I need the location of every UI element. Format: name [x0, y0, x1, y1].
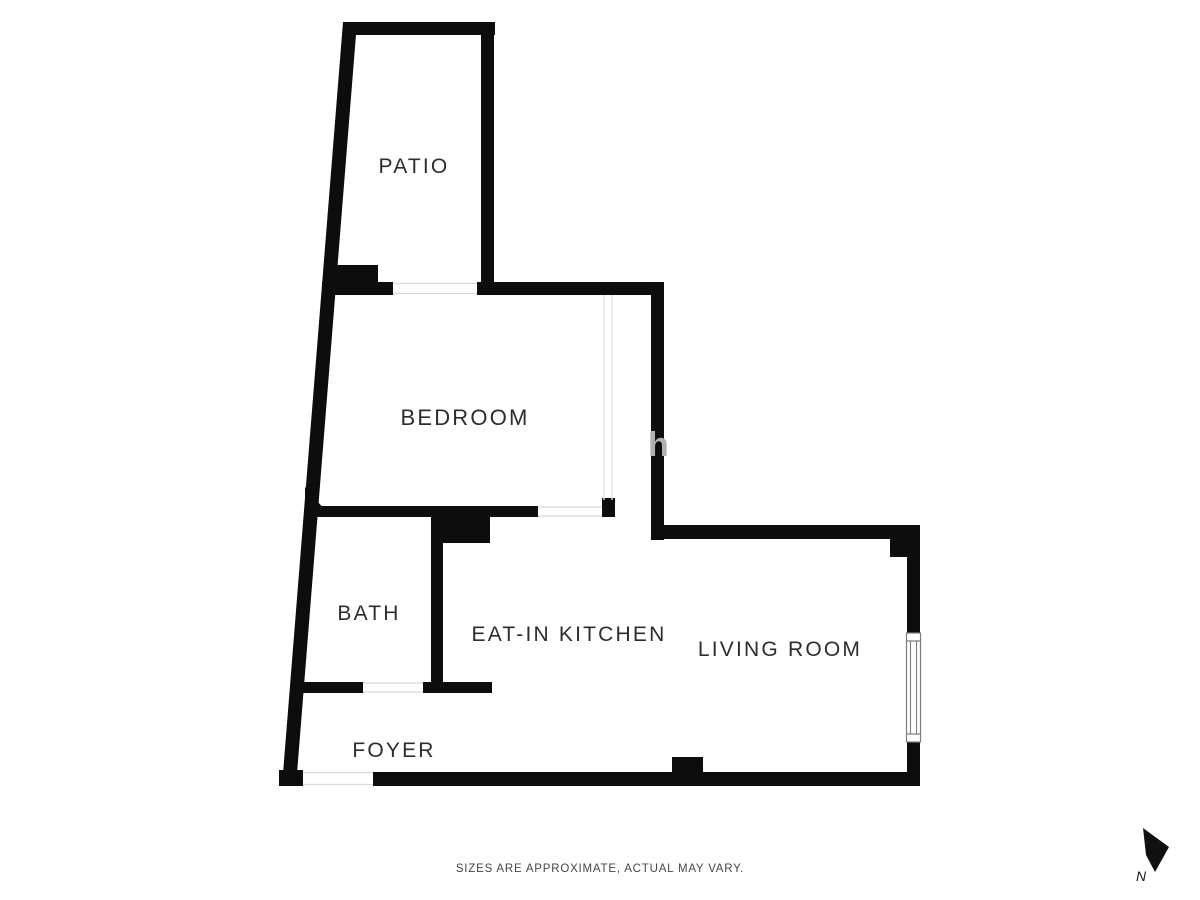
room-label-bath: BATH	[337, 602, 400, 626]
floorplan-drawing	[0, 0, 1200, 900]
wall-bath-bottom-right	[423, 682, 492, 693]
window-frame	[907, 633, 921, 742]
wall-bottom-bump	[672, 757, 703, 772]
wall-bedroom-door-stub	[602, 498, 615, 517]
room-label-living: LIVING ROOM	[698, 638, 862, 662]
room-label-kitchen: EAT-IN KITCHEN	[472, 623, 667, 647]
wall-left-slanted	[282, 22, 357, 786]
glass-partition	[604, 295, 612, 500]
wall-patio-top	[343, 22, 495, 35]
room-label-patio: PATIO	[379, 155, 450, 179]
room-label-bedroom: BEDROOM	[400, 405, 529, 431]
wall-bedroom-top-left	[322, 282, 393, 295]
wall-right-upper	[907, 537, 920, 633]
wall-patio-step	[330, 265, 378, 282]
watermark-letter: h	[648, 428, 669, 462]
compass-north-label: N	[1136, 868, 1146, 884]
living-room-window	[907, 633, 921, 742]
wall-living-top	[651, 525, 920, 539]
wall-bottom	[373, 772, 920, 786]
room-label-foyer: FOYER	[352, 739, 435, 763]
wall-bedroom-bottom	[308, 506, 538, 517]
wall-patio-right	[481, 22, 494, 295]
wall-bath-right	[431, 543, 443, 683]
floorplan-canvas: PATIO BEDROOM BATH EAT-IN KITCHEN LIVING…	[0, 0, 1200, 900]
disclaimer-text: SIZES ARE APPROXIMATE, ACTUAL MAY VARY.	[456, 863, 744, 875]
wall-bedroom-top-right	[477, 282, 664, 295]
wall-left-foot	[279, 770, 303, 786]
north-arrow-icon	[1143, 828, 1169, 872]
wall-kitchen-block	[431, 510, 490, 543]
wall-bedroom-right	[651, 282, 664, 540]
wall-bath-bottom-left	[294, 682, 363, 693]
